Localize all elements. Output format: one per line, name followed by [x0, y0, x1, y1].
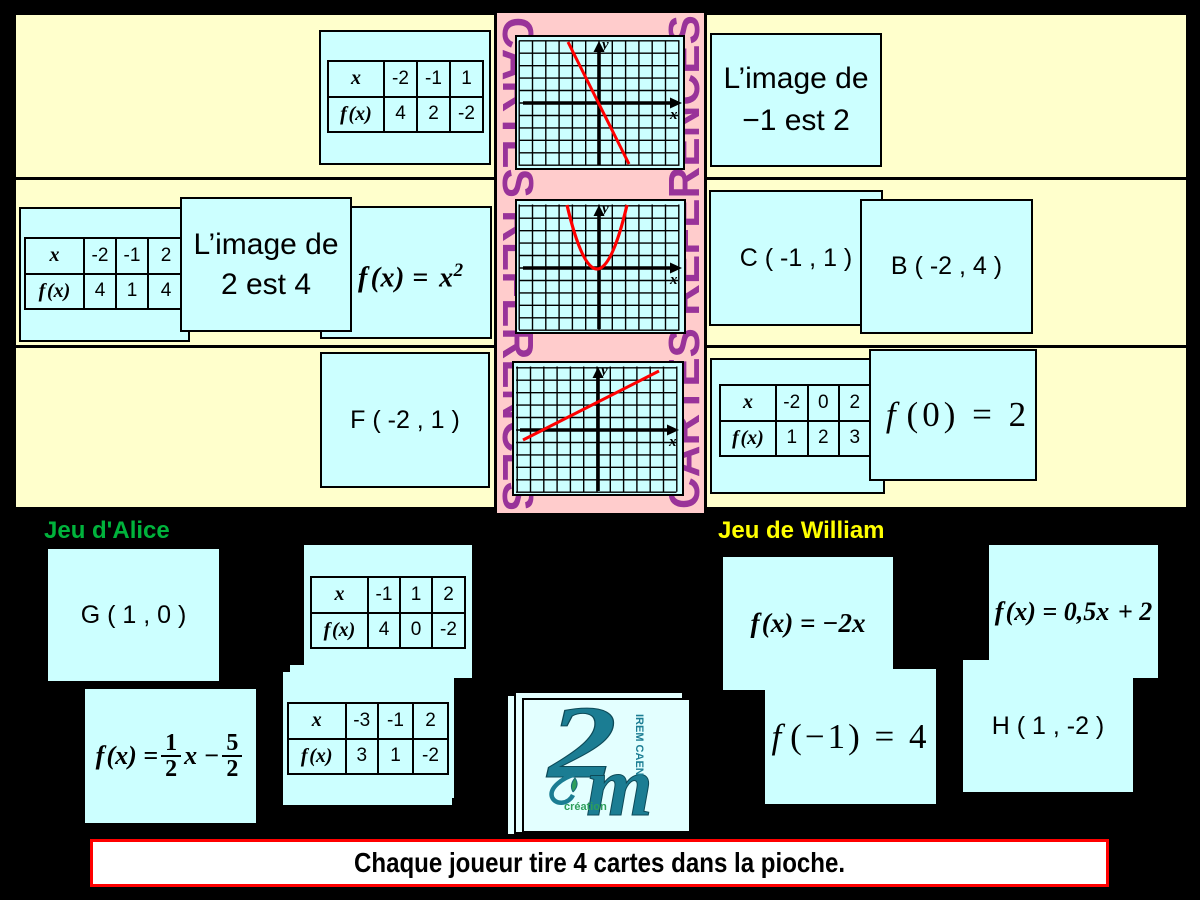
svg-text:x: x [668, 434, 677, 450]
svg-text:y: y [600, 37, 609, 53]
svg-text:création: création [564, 801, 607, 813]
svg-text:IREM CAEN: IREM CAEN [633, 714, 645, 776]
svg-text:y: y [600, 201, 609, 217]
svg-text:y: y [599, 363, 608, 379]
svg-text:x: x [669, 107, 678, 123]
svg-text:x: x [669, 272, 678, 288]
